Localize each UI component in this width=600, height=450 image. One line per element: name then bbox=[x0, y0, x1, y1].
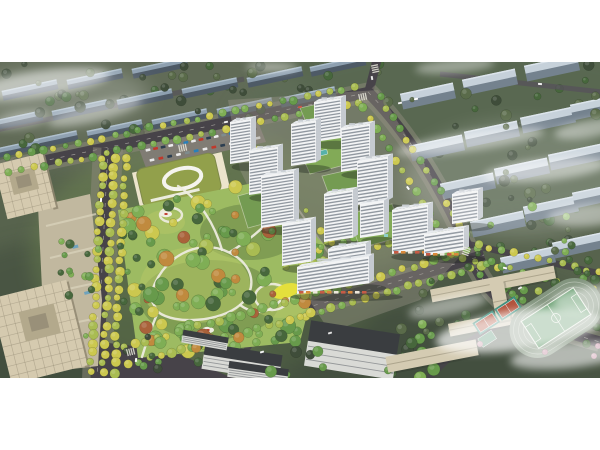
tree bbox=[326, 303, 335, 312]
tree bbox=[98, 172, 108, 182]
rooftop-unit bbox=[330, 97, 334, 99]
tree bbox=[97, 191, 104, 198]
tree-highlight bbox=[106, 285, 109, 288]
rooftop-unit bbox=[376, 155, 381, 157]
tree-highlight bbox=[155, 365, 159, 369]
tree bbox=[317, 227, 325, 235]
tree bbox=[399, 265, 406, 272]
tree-highlight bbox=[259, 304, 263, 308]
tree-highlight bbox=[560, 261, 563, 264]
tree bbox=[135, 307, 143, 315]
tree bbox=[207, 319, 215, 327]
tree bbox=[243, 328, 253, 338]
tree bbox=[189, 239, 197, 247]
tree bbox=[99, 161, 108, 170]
tree bbox=[108, 199, 117, 208]
tree-highlight bbox=[419, 321, 423, 325]
tree bbox=[100, 340, 110, 350]
tree bbox=[240, 89, 247, 96]
tree-highlight bbox=[110, 212, 113, 215]
tree bbox=[18, 166, 25, 173]
tree bbox=[113, 146, 121, 154]
tree bbox=[256, 103, 262, 109]
tree bbox=[209, 208, 216, 215]
tree-highlight bbox=[118, 229, 122, 233]
tree bbox=[103, 322, 112, 331]
tree-highlight bbox=[188, 254, 194, 260]
tree-highlight bbox=[98, 192, 101, 195]
retail-awning bbox=[327, 291, 332, 294]
tree bbox=[174, 327, 182, 335]
tree-highlight bbox=[307, 351, 311, 355]
tree bbox=[87, 138, 94, 145]
tree bbox=[108, 181, 118, 191]
tree bbox=[39, 146, 48, 155]
rooftop-unit bbox=[448, 227, 454, 229]
tree-highlight bbox=[220, 110, 223, 113]
tree bbox=[133, 254, 141, 262]
tree bbox=[94, 228, 101, 235]
tree-highlight bbox=[79, 157, 81, 159]
tree bbox=[461, 310, 471, 320]
tree bbox=[167, 348, 177, 358]
tree-highlight bbox=[105, 151, 107, 153]
retail-awning bbox=[408, 251, 413, 254]
tree bbox=[396, 323, 407, 334]
tree-highlight bbox=[94, 294, 97, 297]
tree bbox=[121, 175, 128, 182]
tree bbox=[100, 331, 107, 338]
tree bbox=[79, 157, 85, 163]
tree-highlight bbox=[114, 313, 118, 317]
tree-highlight bbox=[462, 311, 466, 315]
tree bbox=[94, 256, 101, 263]
tree bbox=[419, 289, 428, 298]
tree bbox=[170, 120, 176, 126]
tree-highlight bbox=[253, 339, 256, 342]
tree-highlight bbox=[134, 207, 139, 212]
rooftop-unit bbox=[374, 199, 378, 201]
tree-highlight bbox=[525, 254, 527, 256]
tree bbox=[147, 306, 158, 317]
tree bbox=[267, 101, 273, 107]
tree-highlight bbox=[19, 167, 22, 170]
tree bbox=[509, 290, 516, 297]
tree bbox=[186, 134, 193, 141]
tree bbox=[58, 270, 64, 276]
tree bbox=[477, 271, 484, 278]
tower-side-facade bbox=[353, 187, 358, 238]
tree bbox=[184, 118, 190, 124]
tree bbox=[191, 295, 205, 309]
tree-highlight bbox=[99, 156, 102, 159]
tree bbox=[112, 132, 118, 138]
tree-highlight bbox=[100, 360, 103, 363]
tree-highlight bbox=[124, 164, 127, 167]
tree bbox=[410, 97, 415, 102]
tree-highlight bbox=[126, 270, 128, 272]
tree-highlight bbox=[238, 233, 244, 239]
tree bbox=[149, 353, 155, 359]
tree-highlight bbox=[125, 361, 129, 365]
tree bbox=[315, 91, 321, 97]
tree bbox=[281, 113, 289, 121]
tree-highlight bbox=[130, 125, 134, 129]
tree-highlight bbox=[90, 314, 93, 317]
tree-highlight bbox=[135, 127, 138, 130]
tree-highlight bbox=[493, 97, 497, 101]
tree-highlight bbox=[536, 256, 539, 259]
tree-highlight bbox=[32, 164, 35, 167]
tree-highlight bbox=[391, 114, 394, 117]
tree bbox=[24, 133, 34, 143]
tree-highlight bbox=[394, 288, 397, 291]
tree bbox=[338, 302, 346, 310]
tree-highlight bbox=[67, 241, 71, 245]
tree-highlight bbox=[164, 201, 169, 206]
tree-highlight bbox=[89, 348, 93, 352]
tree-highlight bbox=[314, 347, 318, 351]
tree-highlight bbox=[430, 279, 432, 281]
tree-highlight bbox=[569, 242, 572, 245]
tree-highlight bbox=[193, 197, 199, 203]
tree-highlight bbox=[119, 249, 123, 253]
tree bbox=[367, 115, 373, 121]
tree-highlight bbox=[462, 89, 467, 94]
tree-highlight bbox=[572, 263, 575, 266]
tree bbox=[139, 284, 146, 291]
tree-highlight bbox=[378, 94, 381, 97]
tree bbox=[290, 346, 301, 357]
tree-highlight bbox=[141, 323, 146, 328]
tree-highlight bbox=[420, 290, 424, 294]
tree-highlight bbox=[96, 246, 99, 249]
tree bbox=[99, 359, 106, 366]
tree bbox=[176, 289, 189, 302]
tree-highlight bbox=[121, 193, 124, 196]
tree bbox=[232, 249, 239, 256]
tree-highlight bbox=[68, 158, 71, 161]
tree-highlight bbox=[90, 322, 94, 326]
tree bbox=[101, 311, 108, 318]
tree-highlight bbox=[201, 241, 207, 247]
tree-highlight bbox=[164, 334, 167, 337]
tree bbox=[192, 213, 203, 224]
tree-highlight bbox=[181, 303, 185, 307]
tree-highlight bbox=[478, 272, 481, 275]
tree-highlight bbox=[121, 211, 124, 214]
vehicle bbox=[538, 83, 542, 85]
tree-highlight bbox=[114, 147, 117, 150]
retail-awning bbox=[401, 251, 406, 254]
tree-highlight bbox=[327, 304, 331, 308]
tree bbox=[101, 350, 110, 359]
tree bbox=[122, 154, 131, 163]
tree-highlight bbox=[193, 296, 199, 302]
retail-awning bbox=[313, 291, 318, 294]
tree bbox=[319, 363, 327, 371]
tree bbox=[396, 124, 404, 132]
tree bbox=[155, 277, 169, 291]
tree-highlight bbox=[547, 258, 549, 260]
rooftop-unit bbox=[243, 117, 246, 119]
tree bbox=[123, 163, 131, 171]
tree-highlight bbox=[118, 244, 121, 247]
rooftop-unit bbox=[290, 219, 296, 221]
tree-highlight bbox=[100, 162, 104, 166]
tree bbox=[461, 88, 472, 99]
tree-highlight bbox=[102, 312, 105, 315]
tree-highlight bbox=[127, 146, 130, 149]
tree bbox=[59, 239, 65, 245]
tree bbox=[286, 316, 295, 325]
tree-highlight bbox=[106, 265, 110, 269]
retail-awning bbox=[362, 291, 367, 294]
tree bbox=[126, 145, 133, 152]
tree-highlight bbox=[100, 173, 104, 177]
tree bbox=[475, 251, 481, 257]
tree-highlight bbox=[583, 78, 586, 81]
tree-highlight bbox=[95, 257, 98, 260]
tree-highlight bbox=[405, 282, 408, 285]
tree-highlight bbox=[40, 147, 44, 151]
tree-highlight bbox=[552, 248, 555, 251]
tree bbox=[327, 88, 334, 95]
tree bbox=[55, 159, 63, 167]
tree bbox=[22, 61, 28, 67]
tree bbox=[154, 337, 166, 349]
tree-highlight bbox=[268, 102, 270, 104]
tree-highlight bbox=[214, 74, 217, 77]
tree-highlight bbox=[169, 73, 172, 76]
tree-highlight bbox=[121, 344, 124, 347]
tree-highlight bbox=[96, 218, 100, 222]
tree-highlight bbox=[233, 250, 236, 253]
tree-highlight bbox=[277, 321, 280, 324]
tower-shadow bbox=[290, 293, 402, 301]
tree bbox=[88, 321, 97, 330]
tree bbox=[318, 309, 324, 315]
tree-highlight bbox=[319, 245, 321, 247]
tree bbox=[265, 366, 277, 378]
tree-highlight bbox=[141, 363, 144, 366]
tree bbox=[377, 93, 384, 100]
tree bbox=[226, 312, 236, 322]
tree-highlight bbox=[232, 276, 236, 280]
tower-side-facade bbox=[316, 117, 321, 162]
tree-highlight bbox=[106, 295, 109, 298]
tree bbox=[179, 73, 188, 82]
tree-highlight bbox=[377, 273, 381, 277]
tree bbox=[491, 95, 501, 105]
tree-highlight bbox=[497, 243, 501, 247]
rooftop-unit bbox=[332, 189, 338, 191]
tree-highlight bbox=[140, 75, 143, 78]
tree bbox=[109, 211, 116, 218]
tree bbox=[96, 208, 104, 216]
tree-highlight bbox=[439, 275, 442, 278]
retail-awning bbox=[440, 253, 445, 256]
tree-highlight bbox=[536, 288, 539, 291]
retail-awning bbox=[426, 253, 431, 256]
tree bbox=[89, 330, 99, 340]
tree bbox=[270, 291, 277, 298]
tree bbox=[270, 300, 278, 308]
tree bbox=[95, 246, 102, 253]
tree bbox=[89, 153, 98, 162]
tree bbox=[123, 131, 130, 138]
tree-highlight bbox=[101, 341, 105, 345]
retail-awning bbox=[433, 253, 438, 256]
tree bbox=[113, 341, 120, 348]
tree-highlight bbox=[424, 329, 427, 332]
tree-highlight bbox=[142, 339, 145, 342]
park-play-equipment bbox=[165, 213, 168, 215]
tree bbox=[318, 244, 324, 250]
tree bbox=[146, 238, 155, 247]
tree bbox=[125, 269, 131, 275]
tree-highlight bbox=[4, 154, 7, 157]
tree-highlight bbox=[271, 301, 275, 305]
tree bbox=[383, 105, 390, 112]
tree bbox=[304, 92, 311, 99]
tree bbox=[358, 103, 367, 112]
tree-highlight bbox=[123, 155, 127, 159]
tree bbox=[411, 264, 418, 271]
tree bbox=[95, 216, 105, 226]
rooftop-unit bbox=[257, 146, 263, 148]
tree-highlight bbox=[297, 111, 300, 114]
tree-highlight bbox=[139, 218, 145, 224]
tree-highlight bbox=[305, 93, 308, 96]
tree-highlight bbox=[195, 322, 198, 325]
tree-highlight bbox=[593, 93, 596, 96]
tree bbox=[168, 72, 176, 80]
tree bbox=[117, 243, 124, 250]
rooftop-unit bbox=[298, 119, 303, 121]
tree-highlight bbox=[535, 94, 538, 97]
tree bbox=[87, 358, 94, 365]
tree bbox=[15, 151, 22, 158]
tree bbox=[220, 278, 231, 289]
tree-highlight bbox=[29, 149, 32, 152]
tree bbox=[535, 287, 543, 295]
tree bbox=[386, 145, 393, 152]
tree bbox=[559, 260, 566, 267]
tree-highlight bbox=[151, 141, 154, 144]
tree-highlight bbox=[187, 134, 190, 137]
tree bbox=[169, 219, 177, 227]
tree bbox=[498, 246, 506, 254]
tree bbox=[104, 150, 110, 156]
tree-highlight bbox=[466, 264, 469, 267]
tree bbox=[161, 83, 169, 91]
tree-highlight bbox=[254, 325, 257, 328]
tree-highlight bbox=[149, 308, 154, 313]
rooftop-unit bbox=[306, 119, 310, 121]
tree-highlight bbox=[339, 303, 342, 306]
tree-highlight bbox=[140, 284, 143, 287]
tree-highlight bbox=[287, 317, 291, 321]
tower-side-facade bbox=[311, 217, 316, 262]
tree bbox=[62, 252, 68, 258]
tree bbox=[507, 265, 513, 271]
tree bbox=[229, 86, 236, 93]
tree bbox=[253, 324, 261, 332]
tree bbox=[114, 294, 121, 301]
tree-highlight bbox=[99, 136, 102, 139]
tree-highlight bbox=[489, 258, 492, 261]
tree-highlight bbox=[520, 297, 523, 300]
tree-highlight bbox=[230, 325, 235, 330]
tree bbox=[118, 249, 126, 257]
tree bbox=[112, 322, 120, 330]
tree bbox=[458, 269, 465, 276]
tree bbox=[324, 71, 333, 80]
tree-highlight bbox=[170, 220, 173, 223]
tree-highlight bbox=[113, 350, 117, 354]
tree-highlight bbox=[106, 248, 110, 252]
tree-highlight bbox=[196, 118, 198, 120]
tree-highlight bbox=[101, 332, 104, 335]
tree-highlight bbox=[205, 234, 208, 237]
tree bbox=[510, 248, 518, 256]
tree-highlight bbox=[122, 176, 125, 179]
retail-awning bbox=[306, 291, 311, 294]
tree-highlight bbox=[26, 134, 30, 138]
tree-highlight bbox=[104, 323, 108, 327]
tree-highlight bbox=[208, 298, 214, 304]
tree bbox=[562, 248, 569, 255]
tree bbox=[447, 271, 456, 280]
tree-highlight bbox=[107, 229, 111, 233]
tree bbox=[219, 109, 227, 117]
tree bbox=[206, 112, 213, 119]
tree-highlight bbox=[175, 328, 179, 332]
tree bbox=[120, 201, 128, 209]
tree-highlight bbox=[85, 252, 88, 255]
tree-highlight bbox=[111, 333, 115, 337]
tree-highlight bbox=[152, 87, 155, 90]
tree-highlight bbox=[98, 209, 101, 212]
tree-highlight bbox=[161, 253, 168, 260]
tree-highlight bbox=[171, 121, 174, 124]
tree-highlight bbox=[66, 292, 69, 295]
tree bbox=[104, 276, 112, 284]
tree-highlight bbox=[134, 255, 137, 258]
rooftop-unit bbox=[270, 171, 277, 173]
tree-highlight bbox=[90, 331, 94, 335]
tree-highlight bbox=[124, 132, 127, 135]
tree bbox=[584, 270, 590, 276]
tree bbox=[393, 287, 401, 295]
tree-highlight bbox=[230, 230, 233, 233]
tree bbox=[236, 311, 246, 321]
tree-highlight bbox=[128, 213, 132, 217]
tree bbox=[178, 231, 190, 243]
rooftop-unit bbox=[351, 242, 357, 244]
tree-highlight bbox=[63, 144, 65, 146]
tree-highlight bbox=[318, 228, 321, 231]
tree bbox=[120, 210, 128, 218]
tree bbox=[376, 272, 386, 282]
tree-highlight bbox=[532, 248, 534, 250]
tree bbox=[297, 84, 305, 92]
tree-highlight bbox=[298, 314, 301, 317]
tree-highlight bbox=[59, 270, 62, 273]
tree-highlight bbox=[41, 163, 45, 167]
tree-highlight bbox=[210, 209, 213, 212]
